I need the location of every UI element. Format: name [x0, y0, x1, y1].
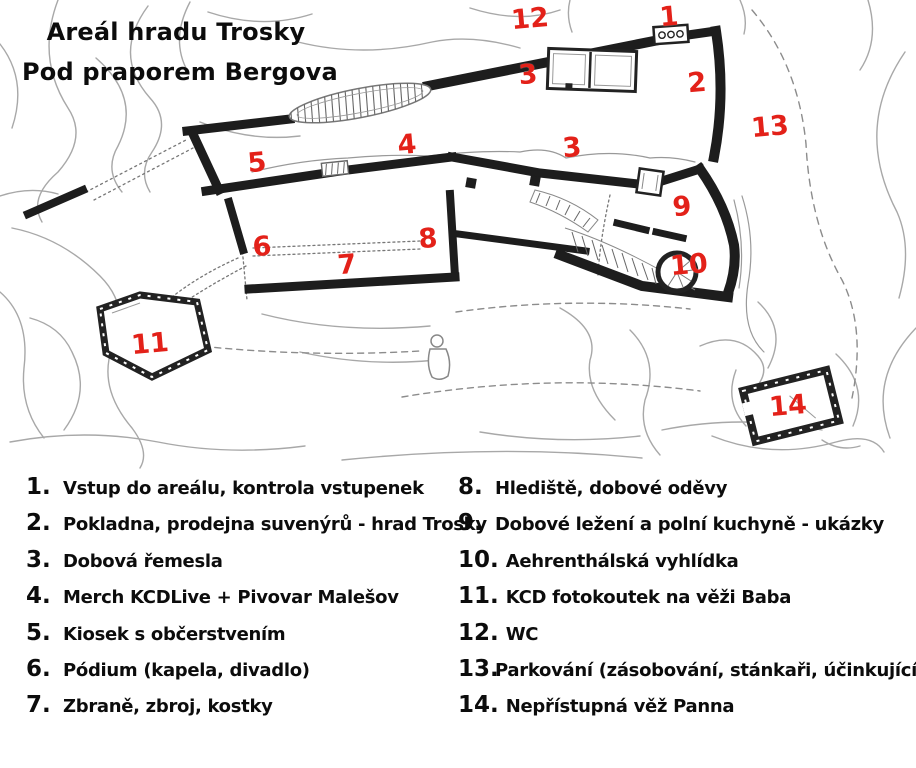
map-marker-13: 13: [750, 112, 790, 142]
legend-label: KCD fotokoutek na věži Baba: [506, 587, 791, 608]
legend-label: Aehrenthálská vyhlídka: [506, 551, 739, 572]
terrace-gate: [636, 168, 663, 195]
legend-num: 12.: [458, 620, 499, 646]
legend-num: 9.: [458, 510, 488, 536]
map-marker-10: 10: [669, 250, 709, 280]
legend-item-2: 2.Pokladna, prodejna suvenýrů - hrad Tro…: [20, 510, 454, 546]
legend-label: Vstup do areálu, kontrola vstupenek: [63, 478, 424, 499]
castle-map: 1 2 3 3 4 5 6 7 8 9 10 11 12 13 14 Areál…: [0, 0, 916, 470]
crafts-building: [547, 48, 636, 91]
human-figure: [428, 335, 449, 379]
map-title-line1: Areál hradu Trosky: [28, 12, 324, 52]
legend-item-12: 12.WC: [458, 620, 914, 656]
legend-label: WC: [506, 624, 538, 645]
legend-num: 10.: [458, 547, 499, 573]
map-marker-4: 4: [396, 131, 417, 160]
legend-column-left: 1.Vstup do areálu, kontrola vstupenek 2.…: [20, 474, 454, 729]
map-marker-5: 5: [246, 149, 267, 178]
map-marker-1: 1: [658, 3, 679, 32]
map-legend: 1.Vstup do areálu, kontrola vstupenek 2.…: [0, 470, 916, 768]
legend-item-8: 8.Hlediště, dobové oděvy: [458, 474, 914, 510]
wall-towers: [465, 175, 541, 189]
map-marker-6: 6: [251, 233, 272, 262]
legend-num: 7.: [26, 692, 56, 718]
map-title: Areál hradu Trosky Pod praporem Bergova: [28, 12, 324, 92]
map-marker-3a: 3: [517, 61, 538, 90]
map-marker-12: 12: [510, 4, 550, 34]
legend-label: Nepřístupná věž Panna: [506, 696, 734, 717]
legend-num: 2.: [26, 510, 56, 536]
legend-label: Merch KCDLive + Pivovar Malešov: [63, 587, 399, 608]
map-marker-7: 7: [336, 251, 357, 280]
map-marker-3b: 3: [561, 134, 582, 163]
map-marker-11: 11: [130, 329, 170, 359]
legend-label: Dobové ležení a polní kuchyně - ukázky: [495, 514, 884, 535]
legend-label: Kiosek s občerstvením: [63, 624, 285, 645]
legend-label: Parkování (zásobování, stánkaři, účinkuj…: [495, 660, 916, 681]
map-title-line2: Pod praporem Bergova: [22, 52, 324, 92]
rock-ramp: [530, 190, 598, 232]
map-marker-2: 2: [686, 69, 707, 98]
legend-label: Pódium (kapela, divadlo): [63, 660, 310, 681]
legend-item-1: 1.Vstup do areálu, kontrola vstupenek: [20, 474, 454, 510]
legend-num: 5.: [26, 620, 56, 646]
legend-label: Dobová řemesla: [63, 551, 223, 572]
map-marker-8: 8: [417, 225, 438, 254]
legend-label: Hlediště, dobové oděvy: [495, 478, 727, 499]
legend-item-9: 9.Dobové ležení a polní kuchyně - ukázky: [458, 510, 914, 546]
legend-num: 11.: [458, 583, 499, 609]
legend-num: 4.: [26, 583, 56, 609]
legend-column-right: 8.Hlediště, dobové oděvy 9.Dobové ležení…: [458, 474, 914, 729]
legend-num: 13.: [458, 656, 488, 682]
legend-item-14: 14.Nepřístupná věž Panna: [458, 692, 914, 728]
legend-num: 14.: [458, 692, 499, 718]
legend-label: Zbraně, zbroj, kostky: [63, 696, 273, 717]
map-marker-9: 9: [671, 193, 692, 222]
legend-item-11: 11.KCD fotokoutek na věži Baba: [458, 583, 914, 619]
legend-item-5: 5.Kiosek s občerstvením: [20, 620, 454, 656]
legend-label: Pokladna, prodejna suvenýrů - hrad Trosk…: [63, 514, 487, 535]
map-marker-14: 14: [768, 391, 808, 421]
legend-num: 3.: [26, 547, 56, 573]
legend-num: 1.: [26, 474, 56, 500]
legend-item-3: 3.Dobová řemesla: [20, 547, 454, 583]
legend-item-6: 6.Pódium (kapela, divadlo): [20, 656, 454, 692]
legend-item-13: 13.Parkování (zásobování, stánkaři, účin…: [458, 656, 914, 692]
legend-item-10: 10.Aehrenthálská vyhlídka: [458, 547, 914, 583]
middle-wall-gate: [321, 161, 348, 177]
legend-item-4: 4.Merch KCDLive + Pivovar Malešov: [20, 583, 454, 619]
legend-num: 6.: [26, 656, 56, 682]
legend-item-7: 7.Zbraně, zbroj, kostky: [20, 692, 454, 728]
legend-num: 8.: [458, 474, 488, 500]
page: { "title": { "line1": "Areál hradu Trosk…: [0, 0, 916, 768]
